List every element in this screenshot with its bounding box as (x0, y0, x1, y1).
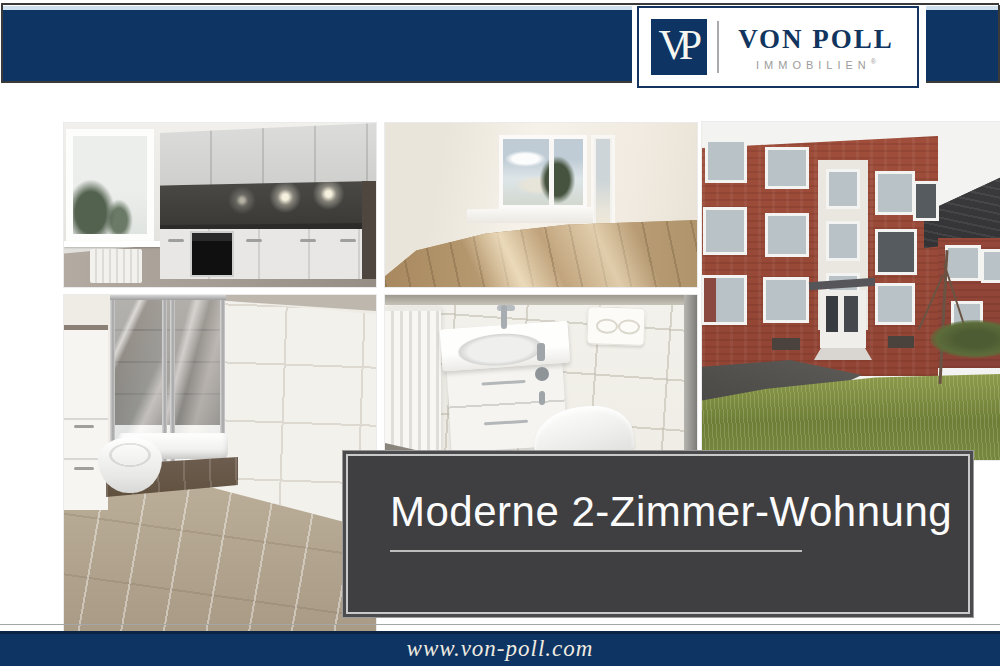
window-sill (467, 207, 593, 223)
website-url: www.von-poll.com (407, 636, 594, 662)
footer-hairline (0, 624, 1000, 625)
vp-monogram-badge: VP (651, 19, 707, 75)
header-bar-right (926, 5, 1000, 83)
kitchen-backsplash (160, 181, 376, 227)
brand-name: VON POLL (719, 24, 913, 55)
kitchen-upper-cabinets (160, 123, 376, 185)
listing-title: Moderne 2-Zimmer-Wohnung (390, 488, 970, 536)
title-plate: Moderne 2-Zimmer-Wohnung (343, 451, 973, 617)
photo-living-room (385, 123, 697, 287)
radiator (385, 307, 441, 451)
photo-building-exterior (702, 122, 1000, 460)
living-room-window (503, 139, 583, 205)
logo-wordmark: VON POLL IMMOBILIEN® (719, 24, 917, 71)
bathroom-cabinet (64, 325, 108, 510)
flyer-page: VP VON POLL IMMOBILIEN® (0, 0, 1000, 666)
vp-monogram: VP (658, 24, 699, 66)
flush-plate (586, 306, 645, 346)
faucet (501, 305, 507, 329)
vonpoll-logo: VP VON POLL IMMOBILIEN® (637, 6, 919, 88)
building-entrance-door (820, 290, 866, 348)
kitchen-radiator (90, 249, 142, 283)
registered-mark: ® (871, 58, 876, 65)
kitchen-oven (190, 231, 234, 277)
photo-vanity-bathroom (385, 295, 697, 459)
brand-subtitle-text: IMMOBILIEN (756, 58, 871, 70)
brand-subtitle: IMMOBILIEN® (719, 58, 913, 71)
header-bar-left (1, 5, 632, 83)
photo-kitchen (64, 123, 376, 287)
footer-bar: www.von-poll.com (0, 631, 1000, 666)
title-underline (390, 550, 802, 552)
photo-shower-bathroom (64, 295, 376, 636)
